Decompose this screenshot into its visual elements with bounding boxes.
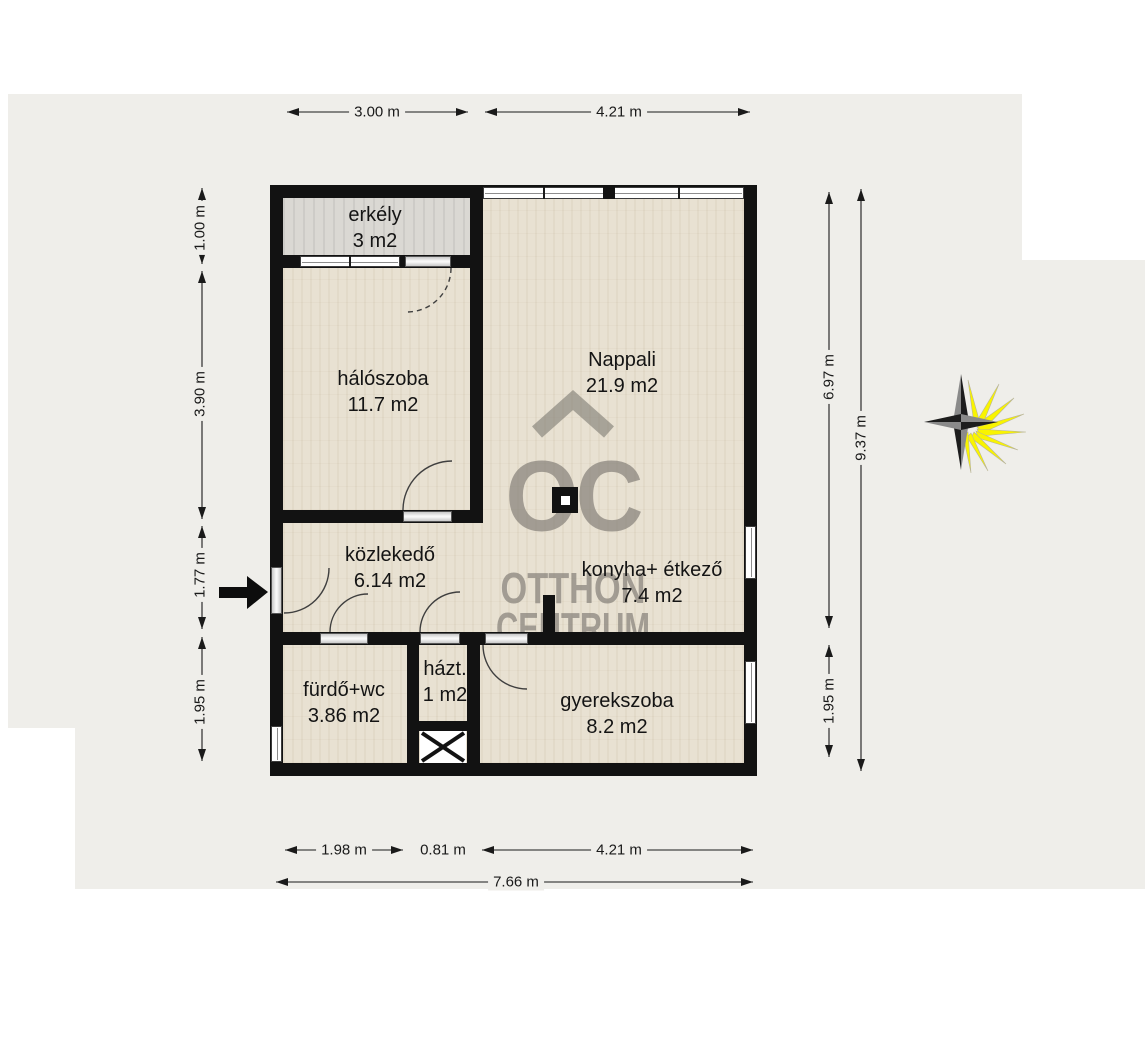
dim-label-bottom-2: 0.81 m <box>415 842 471 859</box>
floorplan-page: OC OTTHON CENTRUM <box>0 0 1145 1039</box>
shaft-x-box <box>420 731 466 763</box>
room-label-hall: közlekedő 6.14 m2 <box>345 542 435 594</box>
room-name: Nappali <box>586 347 658 373</box>
wall-utility-kidsroom <box>467 632 480 776</box>
window-center-post <box>603 185 615 199</box>
room-name: erkély <box>348 202 401 228</box>
bathroom-window <box>271 726 282 762</box>
dim-label-right-inner-1: 6.97 m <box>821 350 838 404</box>
room-area: 21.9 m2 <box>586 373 658 399</box>
room-area: 3 m2 <box>348 228 401 254</box>
dim-label-left-4: 1.95 m <box>192 675 209 729</box>
room-name: házt. <box>423 656 467 682</box>
room-area: 7.4 m2 <box>582 583 723 609</box>
utility-door-threshold <box>420 633 460 644</box>
room-label-bedroom: hálószoba 11.7 m2 <box>337 366 428 418</box>
dim-label-right-outer: 9.37 m <box>853 411 870 465</box>
wall-bedroom-living <box>470 185 483 523</box>
wall-bath-utility <box>407 632 419 776</box>
room-area: 8.2 m2 <box>560 714 673 740</box>
dim-label-bottom-1: 1.98 m <box>316 842 372 859</box>
room-area: 3.86 m2 <box>303 703 385 729</box>
wall-shaft-top <box>419 721 467 731</box>
dim-label-top-2: 4.21 m <box>591 104 647 121</box>
structural-column-core <box>561 496 570 505</box>
room-label-living: Nappali 21.9 m2 <box>586 347 658 399</box>
room-area: 11.7 m2 <box>337 392 428 418</box>
wall-bottom <box>270 763 757 776</box>
kitchen-window <box>745 526 756 579</box>
room-label-kidsroom: gyerekszoba 8.2 m2 <box>560 688 673 740</box>
room-name: konyha+ étkező <box>582 557 723 583</box>
dim-label-bottom-3: 4.21 m <box>591 842 647 859</box>
window-tick <box>349 256 351 267</box>
room-label-bathroom: fürdő+wc 3.86 m2 <box>303 677 385 729</box>
kidsroom-door-threshold <box>485 633 528 644</box>
balcony-door-threshold <box>405 256 451 267</box>
entrance-door-opening <box>271 567 282 614</box>
room-name: fürdő+wc <box>303 677 385 703</box>
wall-kitchen-stub <box>543 595 555 632</box>
kidsroom-window <box>745 661 756 724</box>
wall-bedroom-hall <box>283 510 483 523</box>
dim-label-right-inner-2: 1.95 m <box>821 674 838 728</box>
dim-label-bottom-total: 7.66 m <box>488 874 544 891</box>
dim-label-top-1: 3.00 m <box>349 104 405 121</box>
bathroom-door-threshold <box>320 633 368 644</box>
dim-label-left-1: 1.00 m <box>192 201 209 255</box>
dim-label-left-2: 3.90 m <box>192 367 209 421</box>
room-name: hálószoba <box>337 366 428 392</box>
bedroom-door-threshold <box>403 511 452 522</box>
room-area: 1 m2 <box>423 682 467 708</box>
room-label-kitchen: konyha+ étkező 7.4 m2 <box>582 557 723 609</box>
room-label-utility: házt. 1 m2 <box>423 656 467 708</box>
watermark-line2: CENTRUM <box>496 604 650 654</box>
dim-label-left-3: 1.77 m <box>192 548 209 602</box>
window-tick <box>543 187 545 199</box>
wall-left <box>270 185 283 776</box>
room-label-balcony: erkély 3 m2 <box>348 202 401 254</box>
room-name: gyerekszoba <box>560 688 673 714</box>
room-name: közlekedő <box>345 542 435 568</box>
window-tick <box>678 187 680 199</box>
room-area: 6.14 m2 <box>345 568 435 594</box>
